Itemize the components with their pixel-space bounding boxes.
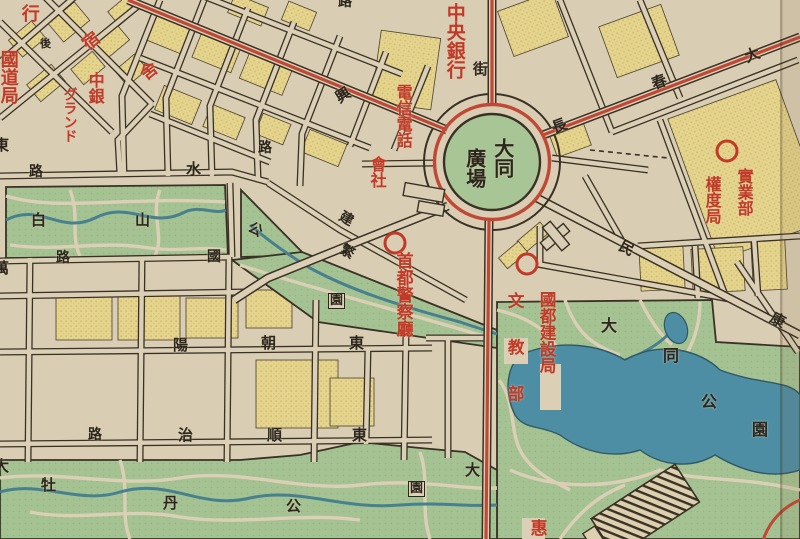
map-label: 公 — [245, 221, 264, 240]
map-label: 春 — [650, 73, 670, 93]
map-label: 東 — [352, 428, 367, 444]
map-label: 興 — [333, 85, 354, 106]
map-label: 行 — [19, 4, 38, 22]
map-label: 民 — [616, 238, 637, 259]
map-label: 園 — [752, 422, 768, 439]
map-label: 陽 — [173, 338, 188, 354]
map-label: 國道局 — [0, 50, 17, 104]
map-label: グランド — [62, 87, 77, 143]
map-label: 朝 — [261, 336, 276, 352]
map-label: 路 — [88, 428, 102, 443]
map-label: 路 — [56, 251, 70, 266]
map-label: 繁 — [337, 242, 356, 262]
map-label: 園 — [408, 481, 425, 497]
map-label: 國都建設局 — [538, 291, 555, 374]
map-label: 後 — [40, 38, 51, 49]
map-label: 惠 — [527, 519, 545, 536]
map-label: 實業部 — [735, 168, 752, 216]
map-label: 大 — [743, 46, 763, 66]
map-label: 舍 — [134, 60, 158, 84]
map-label: 公 — [701, 394, 717, 411]
map-label: 東 — [349, 336, 364, 352]
map-label: 丹 — [163, 496, 178, 512]
map-label: 牡 — [41, 478, 56, 494]
map-label: 廣場 — [464, 148, 485, 188]
map-label: 會社 — [368, 156, 385, 188]
map-label: 萬 — [0, 261, 9, 277]
map-label: 園 — [328, 293, 345, 309]
map-label: 康 — [767, 310, 788, 331]
map-label: 中央銀行 — [444, 3, 464, 79]
map-label: 電信電話 — [394, 84, 411, 148]
map-label: 同 — [663, 348, 679, 365]
map-label: 東 — [0, 138, 9, 154]
map-label: 公 — [286, 499, 301, 515]
map-label: 權度局 — [703, 176, 720, 224]
map-label: 大 — [465, 463, 480, 479]
map-label: 治 — [178, 428, 193, 444]
map-label: 大同 — [492, 138, 513, 178]
map-label: 順 — [267, 428, 282, 444]
map-label: 長 — [550, 117, 570, 137]
map-label: 建 — [336, 209, 355, 229]
map-labels: 行國道局宿舍中銀グランド中央銀行電信電話會社首都警察廳實業部權度局國都建設局文教… — [0, 0, 800, 539]
map-label: 路 — [258, 141, 272, 156]
map-label: 大 — [0, 459, 9, 475]
map-label: 水 — [186, 162, 201, 178]
map-label: 文教部 — [506, 292, 523, 432]
map-label: 宿 — [76, 30, 100, 54]
map-label: 國 — [207, 250, 221, 265]
map-label: 首都警察廳 — [393, 252, 411, 337]
map-label: 中銀 — [86, 72, 103, 104]
map-label: 白 — [31, 213, 46, 229]
map-label: 街 — [473, 62, 488, 78]
map-label: 路 — [29, 165, 43, 180]
map-label: 山 — [135, 213, 150, 229]
map-viewport[interactable]: 行國道局宿舍中銀グランド中央銀行電信電話會社首都警察廳實業部權度局國都建設局文教… — [0, 0, 800, 539]
map-label: 路 — [338, 0, 352, 10]
map-label: 大 — [601, 318, 617, 335]
